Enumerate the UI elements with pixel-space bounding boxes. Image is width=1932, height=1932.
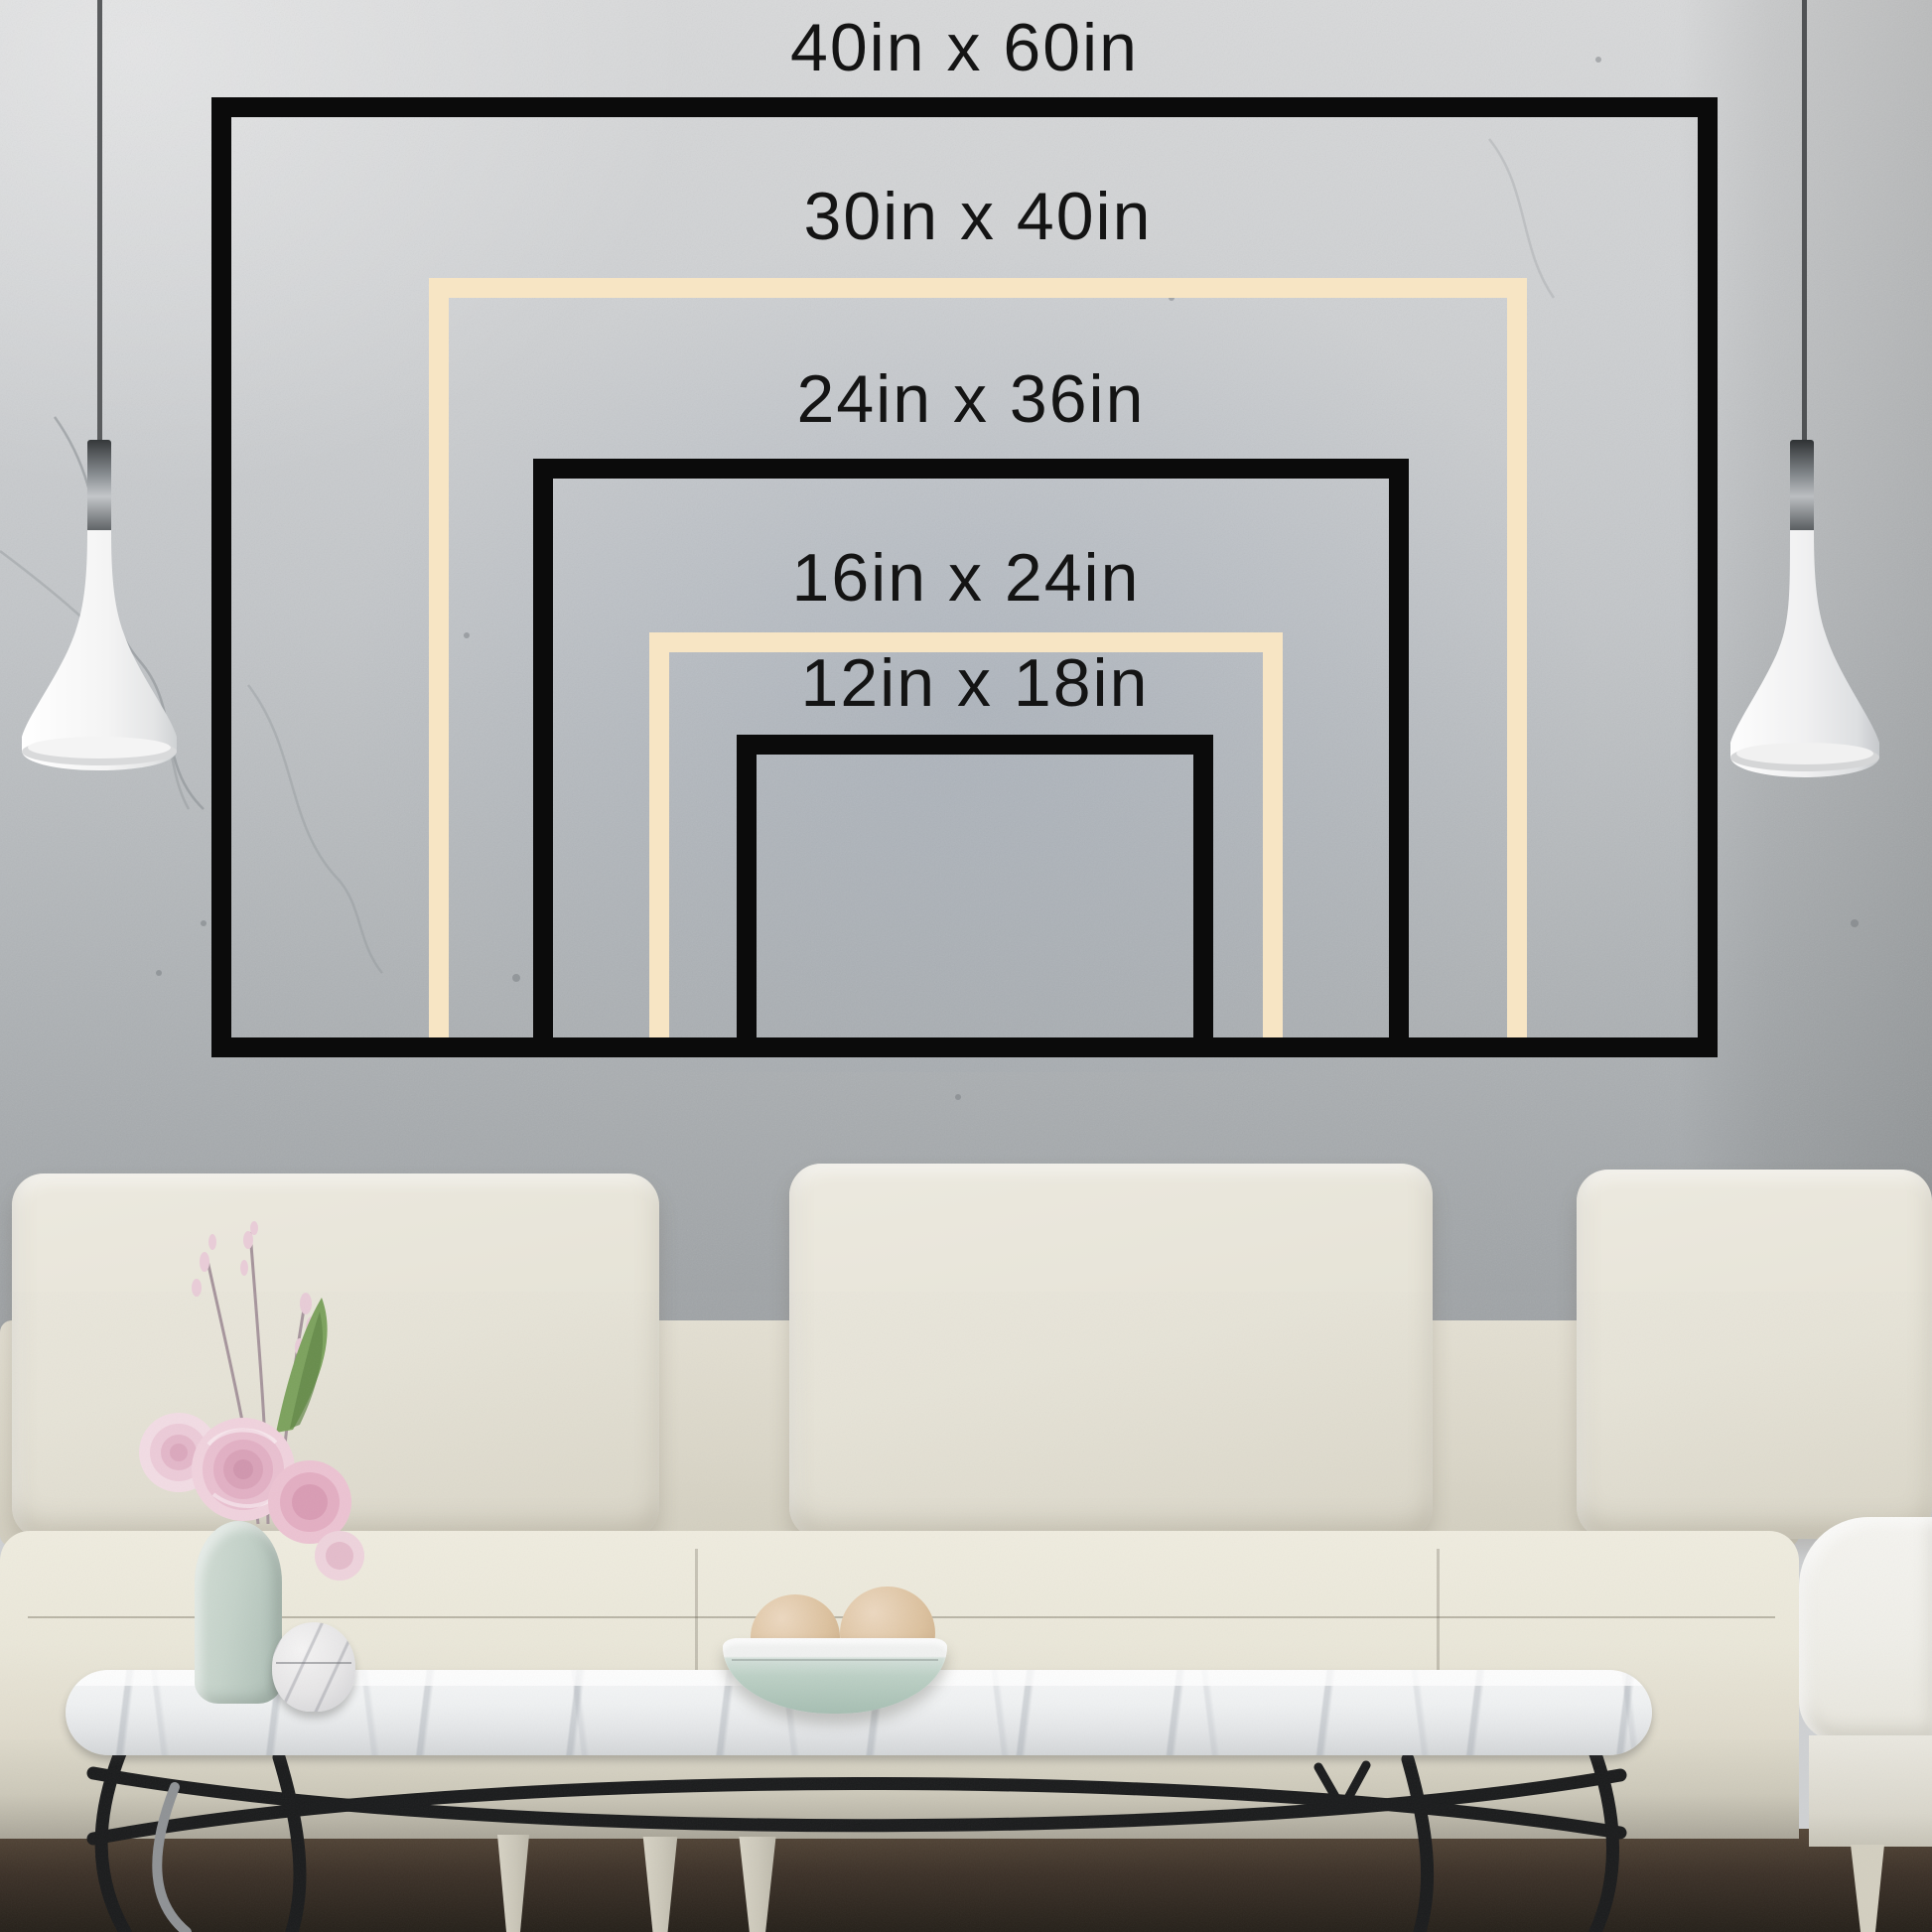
armchair-base [1809, 1735, 1932, 1847]
size-guide-scene: 40in x 60in 30in x 40in 24in x 36in 16in… [0, 0, 1932, 1932]
pink-flowers [109, 1216, 407, 1613]
pendant-lamp-right [1723, 0, 1891, 794]
shared-bottom-bar [211, 1037, 1718, 1057]
size-label-24x36: 24in x 36in [533, 363, 1409, 436]
size-label-16x24: 16in x 24in [649, 542, 1283, 615]
size-label-12x18: 12in x 18in [737, 647, 1213, 720]
sofa-back-cushion [1577, 1170, 1932, 1539]
marble-jar [272, 1622, 355, 1712]
size-label-30x40: 30in x 40in [429, 181, 1527, 253]
sofa-back-cushion [789, 1164, 1433, 1539]
armchair-cushion [1799, 1517, 1932, 1741]
size-label-40x60: 40in x 60in [211, 12, 1718, 84]
table-metal-frame [66, 1747, 1652, 1932]
size-frame-12x18 [737, 735, 1213, 1057]
pendant-lamp-left [10, 0, 189, 784]
